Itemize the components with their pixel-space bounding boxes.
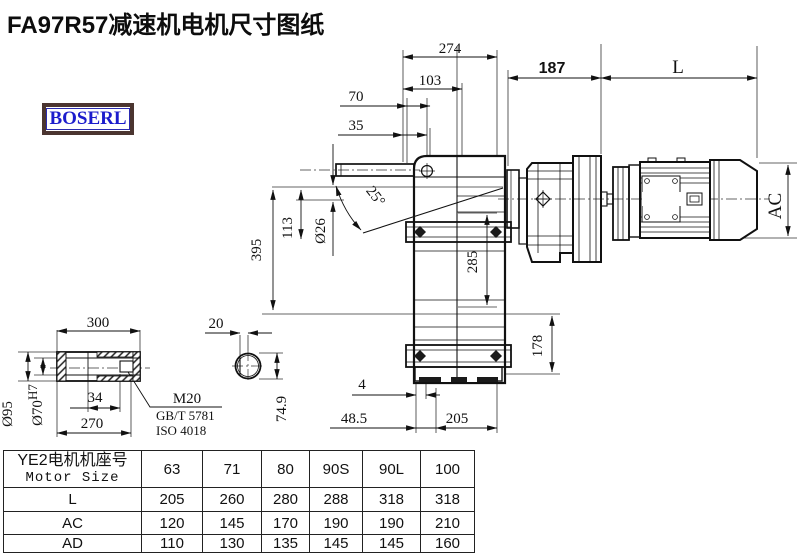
table-cell: 130 (203, 535, 262, 553)
dim-26: Ø26 (313, 218, 329, 244)
table-header-motor-size: YE2电机机座号 Motor Size (4, 451, 142, 488)
table-cell: 170 (262, 512, 310, 535)
row-label: L (4, 488, 142, 512)
dim-103: 103 (419, 73, 442, 89)
dim-4: 4 (358, 377, 366, 393)
table-cell: 90S (310, 451, 363, 488)
dim-20: 20 (209, 316, 224, 332)
table-row: AC 120 145 170 190 190 210 (4, 512, 475, 535)
table-cell: 90L (363, 451, 421, 488)
row-label: AC (4, 512, 142, 535)
table-cell: 210 (421, 512, 475, 535)
table-cell: 205 (142, 488, 203, 512)
table-cell: 318 (363, 488, 421, 512)
dim-113: 113 (280, 217, 296, 239)
table-cell: 260 (203, 488, 262, 512)
dim-m20: M20 (173, 391, 201, 407)
drawing-sheet: FA97R57减速机电机尺寸图纸 BOSERL (0, 0, 800, 555)
gearbox-housing (336, 156, 511, 383)
dim-L: L (672, 57, 684, 78)
table-row: AD 110 130 135 145 145 160 (4, 535, 475, 553)
dim-285: 285 (465, 251, 481, 274)
table-cell: 135 (262, 535, 310, 553)
dim-300: 300 (87, 315, 110, 331)
table-cell: 280 (262, 488, 310, 512)
table-cell: 145 (203, 512, 262, 535)
table-cell: 145 (363, 535, 421, 553)
row-label: AD (4, 535, 142, 553)
motor-size-table: YE2电机机座号 Motor Size 63 71 80 90S 90L 100… (3, 450, 475, 553)
dim-270: 270 (81, 416, 104, 432)
dim-AC: AC (765, 193, 786, 219)
table-cell: 71 (203, 451, 262, 488)
table-cell: 120 (142, 512, 203, 535)
dim-205: 205 (446, 411, 469, 427)
table-header-row: YE2电机机座号 Motor Size 63 71 80 90S 90L 100 (4, 451, 475, 488)
dim-34: 34 (88, 390, 104, 406)
dim-gb-standard: GB/T 5781 (156, 408, 215, 423)
header-en: Motor Size (4, 470, 141, 486)
table-cell: 190 (310, 512, 363, 535)
table-cell: 110 (142, 535, 203, 553)
header-cn: YE2电机机座号 (4, 452, 141, 470)
dim-187: 187 (539, 60, 566, 77)
table-row: L 205 260 280 288 318 318 (4, 488, 475, 512)
table-cell: 288 (310, 488, 363, 512)
dim-35: 35 (349, 118, 364, 134)
table-cell: 318 (421, 488, 475, 512)
table-cell: 100 (421, 451, 475, 488)
dim-48-5: 48.5 (341, 411, 367, 427)
table-cell: 160 (421, 535, 475, 553)
table-cell: 80 (262, 451, 310, 488)
dim-178: 178 (530, 335, 546, 358)
dim-95: Ø95 (0, 401, 16, 427)
dimension-lines (28, 57, 788, 433)
dim-274: 274 (439, 41, 462, 57)
table-cell: 145 (310, 535, 363, 553)
table-cell: 190 (363, 512, 421, 535)
dim-iso-standard: ISO 4018 (156, 423, 206, 438)
dim-395: 395 (249, 239, 265, 262)
table-cell: 63 (142, 451, 203, 488)
dim-74-9: 74.9 (274, 396, 290, 422)
input-shaft-detail (57, 352, 140, 381)
r57-gear-unit (507, 156, 613, 262)
dim-70h7: Ø70 (30, 400, 46, 426)
dim-70h7-sup: H7 (25, 384, 40, 400)
dim-70: 70 (349, 89, 364, 105)
